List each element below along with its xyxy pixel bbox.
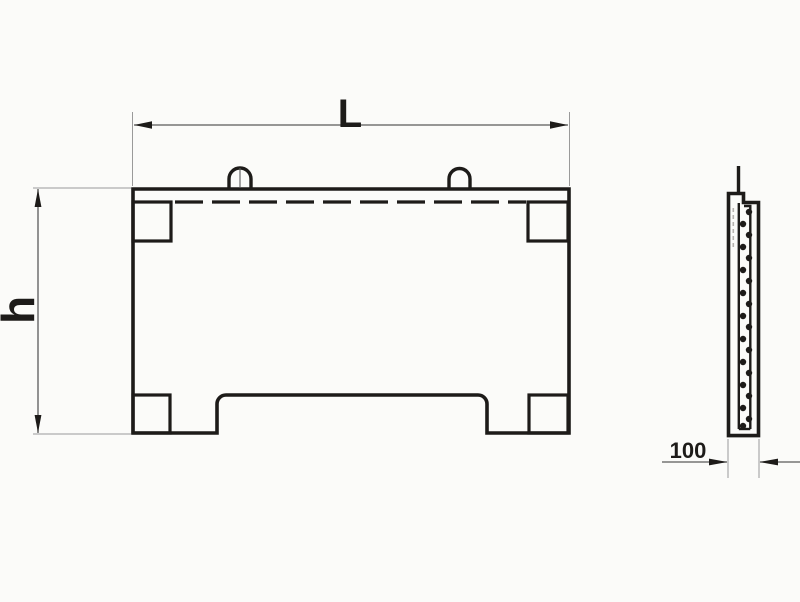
rebar-dot <box>740 244 746 250</box>
lifting-loop-right-wire <box>449 169 470 190</box>
rebar-dot <box>746 393 752 399</box>
technical-drawing: L h <box>0 0 800 602</box>
arrowhead-inward-right-icon <box>760 459 779 466</box>
drawing-canvas: L h <box>0 0 800 602</box>
corner-notch-top-left <box>133 202 171 241</box>
height-label: h <box>0 296 44 324</box>
rebar-dot <box>740 423 746 429</box>
corner-notch-bottom-left <box>133 395 170 433</box>
rebar-dot <box>746 370 752 376</box>
rebar-dot <box>746 209 752 215</box>
rebar-dot <box>746 347 752 353</box>
arrowhead-right-icon <box>550 121 568 128</box>
rebar-dot <box>746 301 752 307</box>
rebar-dot <box>740 382 746 388</box>
rebar-dot <box>740 359 746 365</box>
rebar-dot <box>746 255 752 261</box>
dimension-thickness: 100 <box>662 438 800 478</box>
thickness-label: 100 <box>670 438 707 463</box>
rebar-dot <box>740 336 746 342</box>
rebar-dot <box>740 313 746 319</box>
rebar-dot <box>740 405 746 411</box>
side-view <box>729 166 759 436</box>
arrowhead-left-icon <box>134 121 152 128</box>
arrowhead-down-icon <box>35 415 42 433</box>
arrowhead-up-icon <box>35 189 42 207</box>
lifting-loop-left <box>229 168 251 189</box>
rebar-dot <box>740 267 746 273</box>
rebar-dot <box>746 416 752 422</box>
front-view <box>133 168 569 433</box>
length-label: L <box>338 92 362 136</box>
panel-outline <box>133 189 569 433</box>
rebar-dot <box>740 290 746 296</box>
lifting-loop-right <box>449 169 470 190</box>
rebar-dot <box>746 324 752 330</box>
rebar-dot <box>746 278 752 284</box>
dimension-height: h <box>0 188 131 434</box>
corner-notch-top-right <box>528 202 568 241</box>
arrowhead-inward-left-icon <box>709 459 728 466</box>
dimension-length: L <box>133 92 570 186</box>
corner-notch-bottom-right <box>529 395 568 433</box>
rebar-dot <box>746 232 752 238</box>
rebar-dot <box>740 221 746 227</box>
